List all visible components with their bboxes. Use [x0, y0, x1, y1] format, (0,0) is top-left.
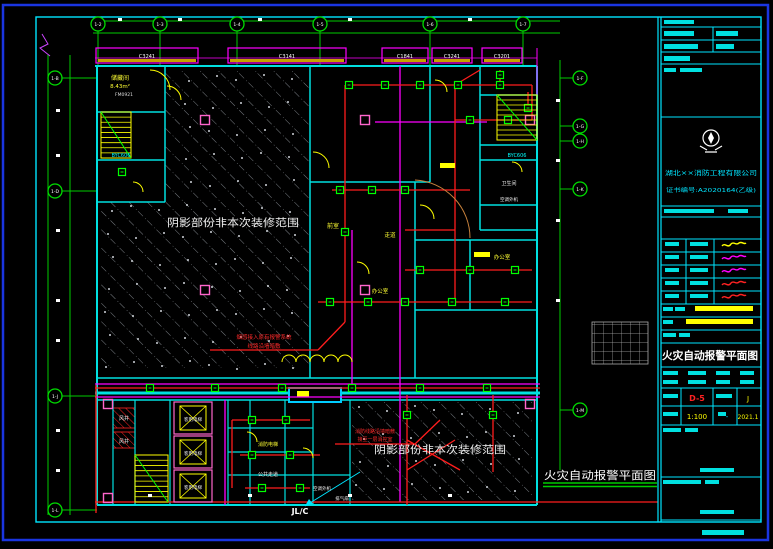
hatch-dot: [263, 74, 265, 76]
field-bar: [688, 380, 706, 384]
hatch-dot: [286, 289, 288, 291]
window-label: C3141: [279, 54, 295, 60]
hatch-dot: [107, 233, 109, 235]
hatch-dot: [159, 264, 161, 266]
hatch-dot: [236, 368, 238, 370]
title-block: 湖北××消防工程有限公司 证书编号:A2020164(乙级) 火灾自动报警平面图…: [658, 17, 761, 535]
stair-handrail: [497, 95, 537, 140]
dimension-tick: [556, 299, 560, 302]
plan-label: 8.43m²: [110, 83, 130, 90]
hatch-dot: [185, 158, 187, 160]
field-bar: [664, 68, 676, 72]
plan-label: 空调外机: [500, 196, 518, 203]
dimension-tick: [556, 99, 560, 102]
corner-mark: [40, 34, 50, 56]
hatch-dot: [241, 157, 243, 159]
hatch-dot: [112, 256, 114, 258]
field-bar: [675, 307, 685, 311]
hatch-dot: [184, 103, 186, 105]
stair: [497, 95, 537, 140]
axis-bubble-label: 1-B: [51, 76, 58, 82]
hatch-dot: [287, 101, 289, 103]
hatch-dot: [239, 290, 241, 292]
dimension-tick: [56, 109, 60, 112]
plan-label: 前室: [327, 222, 339, 230]
hatch-dot: [189, 360, 191, 362]
hatch-dot: [158, 209, 160, 211]
dimension-tick: [178, 18, 182, 21]
field-bar: [664, 56, 690, 61]
hatch-dot: [289, 211, 291, 213]
field-bar: [716, 380, 730, 384]
dimension-tick: [148, 494, 152, 497]
hatch-dot: [292, 367, 294, 369]
drawing-sheet[interactable]: 阴影部份非本次装修范围 阴影部份非本次装修范围 火灾自动报警平面图 湖北××消防…: [0, 0, 773, 549]
hatch-dot: [290, 257, 292, 259]
hatch-dot: [234, 258, 236, 260]
field-bar: [664, 20, 694, 24]
axis-bubble-label: 1-J: [52, 394, 58, 400]
plan-label: BYC606: [112, 153, 131, 159]
hatch-dot: [355, 484, 357, 486]
field-bar: [663, 333, 676, 337]
hatch-dot: [485, 431, 487, 433]
field-bar: [680, 68, 702, 72]
field-bar: [663, 412, 678, 416]
hatch-dot: [261, 207, 263, 209]
field-bar: [740, 380, 754, 384]
axis-bubble-label: 1-G: [576, 124, 585, 130]
signature-column: [722, 242, 746, 298]
axis-bubble-label: 1-3: [156, 22, 163, 28]
hatch-dot: [489, 408, 491, 410]
plan-label: 排气扇: [335, 495, 349, 502]
hatch-dot: [212, 107, 214, 109]
company-logo-icon: [700, 130, 722, 152]
window-label: C3241: [139, 54, 155, 60]
hatch-dot: [513, 435, 515, 437]
project-name-bar: [686, 319, 753, 324]
field-bar: [688, 371, 706, 375]
hatch-dot: [490, 463, 492, 465]
hatch-dot: [136, 283, 138, 285]
hatch-dot: [135, 237, 137, 239]
hatch-dot: [386, 410, 388, 412]
field-bar: [716, 31, 738, 36]
axis-bubble-label: 1-D: [51, 189, 59, 195]
axis-bubble-label: 1-M: [576, 408, 584, 414]
dimension-tick: [56, 429, 60, 432]
drawing-date: 2021.1: [738, 414, 759, 421]
fa-module-box: [289, 388, 341, 402]
project-name-bar: [695, 306, 753, 311]
hatch-dot: [109, 334, 111, 336]
axis-bubble-label: 1-5: [316, 22, 323, 28]
hatch-dot: [466, 436, 468, 438]
field-bar: [664, 44, 698, 49]
field-bar: [665, 242, 679, 246]
plan-label: 公共走道: [258, 471, 278, 478]
hatch-dot: [156, 342, 158, 344]
plan-label: 客用电梯: [184, 416, 202, 423]
hatch-dot: [137, 338, 139, 340]
hatch-dot: [438, 432, 440, 434]
field-bar: [663, 320, 673, 324]
hatch-dot: [132, 315, 134, 317]
hatch-dot: [358, 406, 360, 408]
hatch-dot: [267, 285, 269, 287]
hatch-dot: [514, 490, 516, 492]
hatch-dot: [104, 311, 106, 313]
hatch-dot: [236, 134, 238, 136]
column: [361, 116, 370, 125]
hatch-dot: [216, 309, 218, 311]
plan-label: 风井: [119, 415, 129, 422]
field-bar: [663, 307, 673, 311]
shaded-note-lower: 阴影部份非本次装修范围: [374, 443, 506, 456]
hatch-dot: [208, 364, 210, 366]
plan-label: 办公室: [372, 287, 389, 295]
hatch-dot: [293, 179, 295, 181]
hatch-dot: [266, 230, 268, 232]
hatch-dot: [111, 210, 113, 212]
field-bar: [665, 294, 679, 298]
plan-label: BYC606: [508, 153, 527, 159]
hatch-dot: [105, 366, 107, 368]
hatch-dot: [288, 156, 290, 158]
dimension-tick: [556, 159, 560, 162]
hatch-dot: [264, 363, 266, 365]
signature-stroke: [722, 294, 746, 298]
company-name: 湖北××消防工程有限公司: [665, 168, 757, 177]
hatch-dot: [434, 464, 436, 466]
field-bar: [663, 394, 678, 398]
plan-label: 消防电梯: [258, 441, 278, 448]
hatch-dot: [164, 287, 166, 289]
hatch-dot: [208, 130, 210, 132]
hatch-dot: [263, 308, 265, 310]
field-bar: [705, 480, 719, 484]
column: [104, 494, 113, 503]
field-bar: [700, 468, 734, 472]
hatch-dot: [188, 80, 190, 82]
field-bar: [663, 428, 681, 432]
drawing-scale: 1:100: [687, 413, 707, 421]
field-bar: [685, 428, 698, 432]
signature-stroke: [722, 281, 746, 285]
hatch-dot: [184, 337, 186, 339]
dimension-tick: [348, 18, 352, 21]
hatch-dot: [294, 234, 296, 236]
hatch-dot: [433, 409, 435, 411]
hatch-dot: [133, 361, 135, 363]
field-bar: [690, 255, 708, 259]
hatch-dot: [462, 459, 464, 461]
axis-bubble-label: 1-2: [94, 22, 101, 28]
cad-canvas[interactable]: 阴影部份非本次装修范围 阴影部份非本次装修范围 火灾自动报警平面图 湖北××消防…: [0, 0, 773, 549]
hatch-dot: [186, 204, 188, 206]
plan-label: 空调外机: [313, 485, 331, 492]
hatch-dot: [163, 232, 165, 234]
drawing-number: D-5: [689, 394, 705, 403]
hatch-dot: [238, 235, 240, 237]
hatch-dot: [108, 288, 110, 290]
hatch-dot: [188, 314, 190, 316]
plan-label: 接至一层消控室: [357, 436, 392, 443]
hatch-dot: [183, 282, 185, 284]
hatch-dot: [517, 412, 519, 414]
signature-stroke: [722, 268, 746, 272]
axis-bubble-label: 1-4: [233, 22, 240, 28]
dimension-tick: [56, 154, 60, 157]
field-bar: [664, 209, 714, 213]
field-bar: [690, 281, 708, 285]
hatch-dot: [235, 313, 237, 315]
dimension-tick: [56, 469, 60, 472]
company-cert: 证书编号:A2020164(乙级): [666, 186, 756, 194]
hatch-dot: [262, 262, 264, 264]
axis-bubble-label: 1-H: [576, 139, 584, 145]
field-bar: [663, 371, 678, 375]
title-underline: [543, 483, 657, 487]
hatch-dot: [242, 212, 244, 214]
dimension-tick: [118, 18, 122, 21]
signature-stroke: [722, 255, 746, 259]
dimension-tick: [258, 18, 262, 21]
field-bar: [665, 281, 679, 285]
hatch-dot: [209, 185, 211, 187]
dimension-tick: [468, 18, 472, 21]
swing-door-arc: [415, 180, 470, 238]
plan-label: 消防线路沿墙暗敷: [355, 428, 395, 435]
plan-label: 走道: [384, 231, 396, 239]
plan-label: 风井: [119, 438, 129, 445]
column: [104, 400, 113, 409]
label-highlight: [440, 163, 455, 168]
hatch-dot: [383, 488, 385, 490]
dash-value: -: [726, 413, 729, 421]
axis-bubble-label: 1-L: [52, 508, 59, 514]
hatch-dot: [211, 286, 213, 288]
field-bar: [690, 268, 708, 272]
signature-stroke: [722, 242, 746, 246]
field-bar: [716, 44, 734, 49]
hatch-dot: [359, 461, 361, 463]
legend-grid: [592, 322, 648, 364]
column: [361, 286, 370, 295]
plan-label: 客用电梯: [184, 450, 202, 457]
hatch-dot: [415, 460, 417, 462]
plan-label: 烟感接入原有报警系统: [236, 333, 292, 341]
drawing-category: J: [746, 395, 749, 403]
hatch-dot: [264, 129, 266, 131]
fa-module-label-bar: [297, 391, 309, 397]
hatch-dot: [291, 78, 293, 80]
axis-bubble-label: 1-K: [576, 187, 584, 193]
hatch-dot: [237, 180, 239, 182]
hatch-dot: [411, 483, 413, 485]
window-label: C1841: [397, 54, 413, 60]
hatch-dot: [467, 491, 469, 493]
hatch-dot: [461, 413, 463, 415]
field-bar: [740, 371, 754, 375]
hatch-dot: [216, 75, 218, 77]
field-bar: [663, 480, 701, 484]
field-bar: [716, 371, 730, 375]
dimension-tick: [556, 219, 560, 222]
stair: [101, 112, 131, 158]
field-bar: [700, 510, 734, 514]
plan-label: 卫生间: [501, 180, 516, 187]
hatch-dot: [161, 365, 163, 367]
field-bar: [664, 31, 694, 36]
hatch-dot: [187, 259, 189, 261]
hatch-dot: [387, 465, 389, 467]
field-bar: [665, 268, 679, 272]
dimension-tick: [56, 229, 60, 232]
hatch-dot: [131, 260, 133, 262]
titleblock-drawing-title: 火灾自动报警平面图: [662, 349, 758, 362]
hatch-dot: [410, 437, 412, 439]
dimension-tick: [448, 494, 452, 497]
label-highlight: [474, 252, 490, 257]
plan-label: JL/C: [291, 507, 309, 516]
hatch-dot: [268, 106, 270, 108]
hatch-dot: [190, 181, 192, 183]
plan-label: 客用电梯: [184, 484, 202, 491]
window-label: C3241: [444, 54, 460, 60]
field-bar: [665, 255, 679, 259]
field-bar: [690, 294, 708, 298]
field-bar: [716, 394, 732, 398]
hatch-dot: [439, 487, 441, 489]
dimension-tick: [56, 339, 60, 342]
hatch-dot: [240, 102, 242, 104]
hatch-dot: [292, 133, 294, 135]
axis-bubble-label: 1-6: [426, 22, 433, 28]
shaded-note-upper: 阴影部份非本次装修范围: [167, 216, 299, 229]
hatch-dot: [160, 310, 162, 312]
window-label: C3201: [494, 54, 510, 60]
hatch-dot: [215, 263, 217, 265]
hatch-dot: [130, 205, 132, 207]
field-bar: [702, 530, 744, 535]
axis-bubble-label: 1-7: [519, 22, 526, 28]
hatch-dot: [414, 405, 416, 407]
hatch-dot: [212, 341, 214, 343]
hatch-dot: [265, 184, 267, 186]
hatch-dot: [189, 126, 191, 128]
stair-handrail: [101, 112, 131, 158]
hatch-dot: [235, 79, 237, 81]
dimension-tick: [248, 494, 252, 497]
dimension-tick: [56, 299, 60, 302]
hatch-dot: [210, 231, 212, 233]
hatch-dot: [213, 153, 215, 155]
hatch-dot: [486, 486, 488, 488]
hatch-dot: [291, 312, 293, 314]
field-bar: [690, 242, 708, 246]
axis-bubble-label: 1-F: [576, 76, 583, 82]
hatch-dot: [182, 236, 184, 238]
plan-label: 办公室: [494, 253, 511, 261]
hatch-dot: [518, 458, 520, 460]
field-bar: [728, 209, 748, 213]
field-bar: [663, 380, 678, 384]
plan-label: FM0921: [115, 92, 133, 98]
hatch-dot: [214, 208, 216, 210]
plan-label: 储藏间: [111, 74, 129, 82]
field-bar: [679, 333, 690, 337]
plan-bottom-title: 火灾自动报警平面图: [544, 468, 656, 482]
plan-label: 线路沿墙暗敷: [247, 342, 281, 350]
hatch-dot: [260, 152, 262, 154]
